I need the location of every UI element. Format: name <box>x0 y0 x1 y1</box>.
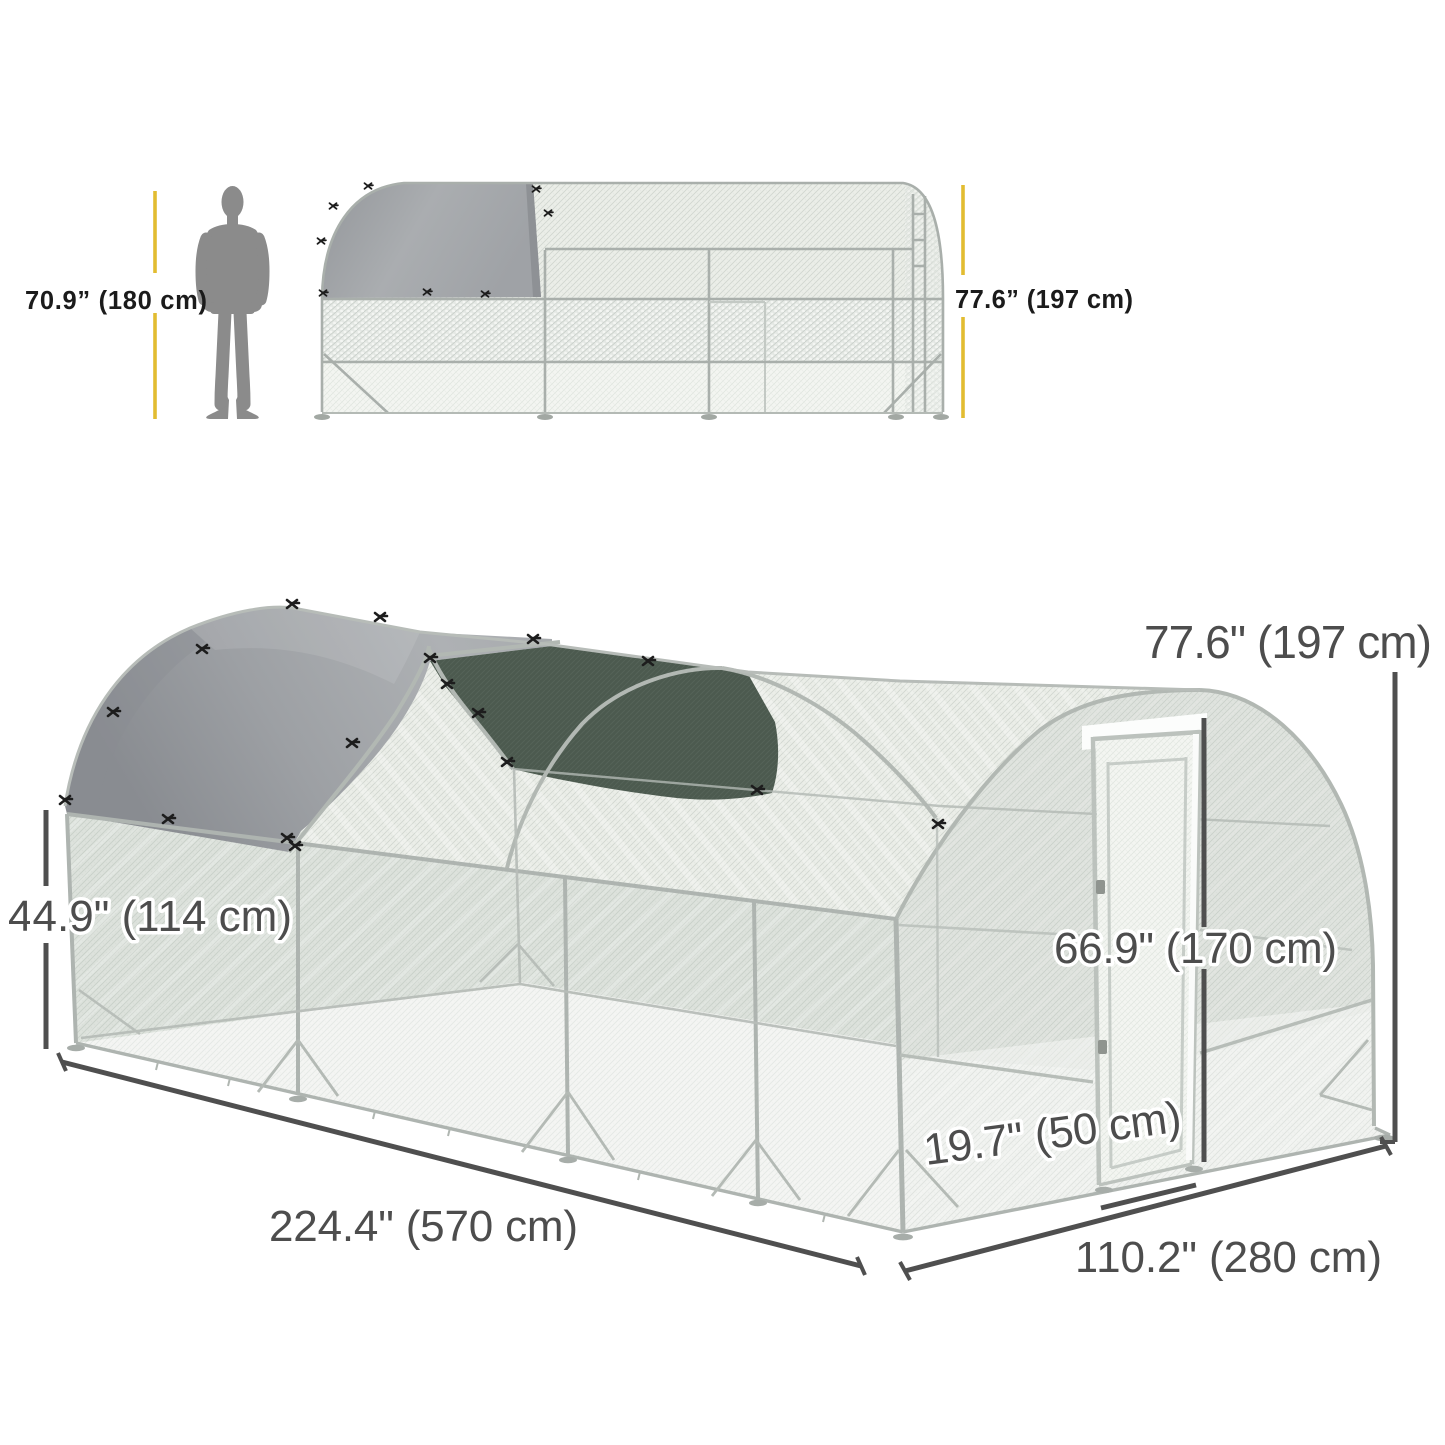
svg-text:70.9” (180 cm): 70.9” (180 cm) <box>25 287 207 315</box>
svg-text:77.6” (197 cm): 77.6” (197 cm) <box>955 286 1133 314</box>
svg-text:224.4" (570 cm): 224.4" (570 cm) <box>269 1202 578 1251</box>
svg-text:44.9" (114 cm): 44.9" (114 cm) <box>8 892 292 941</box>
svg-text:66.9" (170 cm): 66.9" (170 cm) <box>1054 924 1337 973</box>
svg-text:77.6" (197 cm): 77.6" (197 cm) <box>1144 616 1432 668</box>
svg-text:110.2" (280 cm): 110.2" (280 cm) <box>1075 1233 1382 1282</box>
